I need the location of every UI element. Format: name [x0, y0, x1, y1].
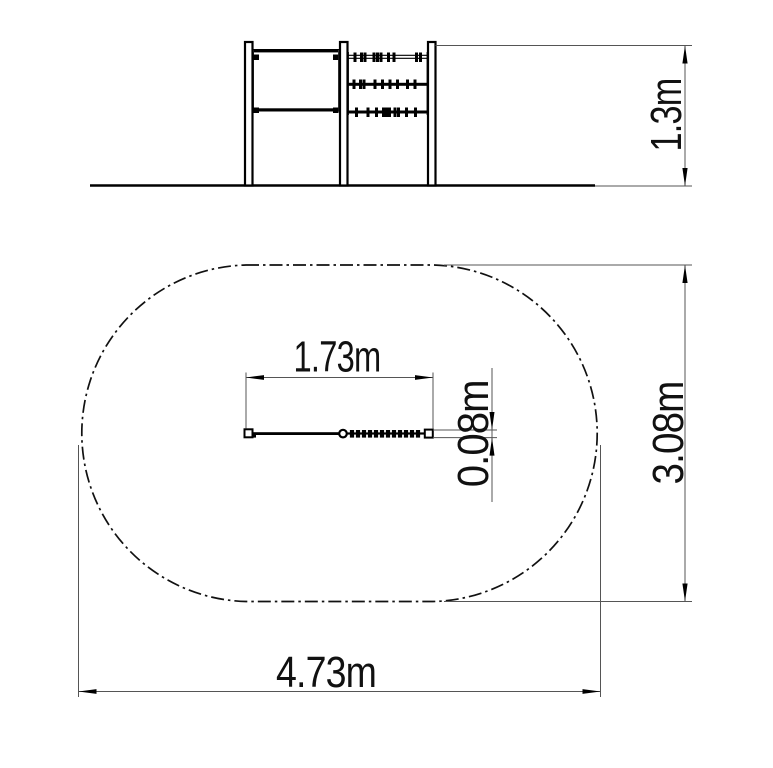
- dimension-arrow-down: [682, 584, 687, 602]
- bead-tick: [381, 80, 384, 90]
- dimension-arrow-left: [79, 689, 97, 694]
- dimension-arrow-down: [682, 168, 687, 186]
- equipment-width-dimension: 0.08m: [433, 368, 498, 502]
- safety-zone-depth-label: 3.08m: [644, 382, 693, 485]
- panel-bolt: [333, 55, 339, 61]
- bead-tick: [376, 53, 379, 63]
- bead-tick: [405, 108, 408, 118]
- post-middle-plan: [339, 430, 347, 438]
- equipment-length-label: 1.73m: [294, 333, 381, 382]
- bead-tick: [414, 80, 417, 90]
- bead-tick: [419, 53, 422, 63]
- bead-tick: [388, 108, 391, 118]
- bead-tick: [367, 108, 370, 118]
- equipment-length-dimension: 1.73m: [246, 333, 433, 429]
- height-dimension-label: 1.3m: [642, 79, 691, 152]
- bead-tick: [414, 108, 417, 118]
- bead-tick: [363, 80, 366, 90]
- panel-bolt: [254, 108, 260, 114]
- post-middle: [340, 42, 348, 186]
- bead-tick: [354, 53, 357, 63]
- panel-top-rail: [253, 49, 341, 52]
- bead-tick: [368, 430, 372, 438]
- bead-tick: [396, 80, 399, 90]
- post-right: [428, 42, 436, 186]
- safety-zone-length-label: 4.73m: [276, 648, 376, 697]
- safety-zone-length-dimension: 4.73m: [79, 445, 601, 697]
- technical-drawing-canvas: 1.3m 1.73m: [0, 0, 773, 768]
- dimension-arrow-up: [682, 46, 687, 64]
- bead-tick: [382, 108, 385, 118]
- bead-tick: [393, 53, 396, 63]
- bead-tick: [380, 430, 384, 438]
- bead-tick: [394, 108, 397, 118]
- bead-tick: [362, 430, 366, 438]
- bead-tick: [375, 108, 378, 118]
- bead-tick: [364, 53, 367, 63]
- bead-tick: [360, 53, 363, 63]
- bead-tick: [398, 430, 402, 438]
- bead-tick: [355, 108, 358, 118]
- bead-tick: [410, 430, 414, 438]
- bead-tick: [373, 53, 376, 63]
- bead-tick: [416, 430, 420, 438]
- bead-tick: [350, 430, 354, 438]
- dimension-arrow-right: [415, 375, 433, 380]
- playground-equipment-drawing: 1.3m 1.73m: [0, 0, 773, 768]
- panel-plan-line: [253, 432, 340, 435]
- bead-tick: [385, 108, 388, 118]
- bead-tick: [380, 53, 383, 63]
- equipment-width-label: 0.08m: [449, 380, 498, 487]
- panel-bolt: [333, 108, 339, 114]
- dimension-arrow-right: [583, 689, 601, 694]
- panel-bolt: [254, 55, 260, 61]
- bead-tick: [415, 53, 418, 63]
- bead-tick: [386, 430, 390, 438]
- dimension-arrow-up: [682, 265, 687, 283]
- post-right-plan: [425, 430, 433, 438]
- dimension-arrow-left: [246, 375, 264, 380]
- bead-tick: [389, 80, 392, 90]
- abacus-beads-row-1: [354, 53, 423, 63]
- bead-tick: [392, 430, 396, 438]
- panel-bottom-rail: [253, 108, 341, 111]
- bead-tick: [397, 108, 400, 118]
- bead-tick: [406, 80, 409, 90]
- bead-tick: [353, 80, 356, 90]
- equipment-plan: [245, 429, 433, 437]
- post-left: [245, 42, 253, 186]
- post-left-plan: [245, 429, 253, 437]
- side-elevation-view: 1.3m: [90, 42, 692, 186]
- bead-tick: [359, 80, 362, 90]
- bead-tick: [374, 430, 378, 438]
- bead-tick: [404, 430, 408, 438]
- bead-tick: [387, 53, 390, 63]
- height-dimension: 1.3m: [436, 46, 693, 187]
- bead-tick: [356, 430, 360, 438]
- plan-view: 1.73m 0.08m 3.08m 4.73m: [79, 265, 694, 697]
- bead-tick: [374, 80, 377, 90]
